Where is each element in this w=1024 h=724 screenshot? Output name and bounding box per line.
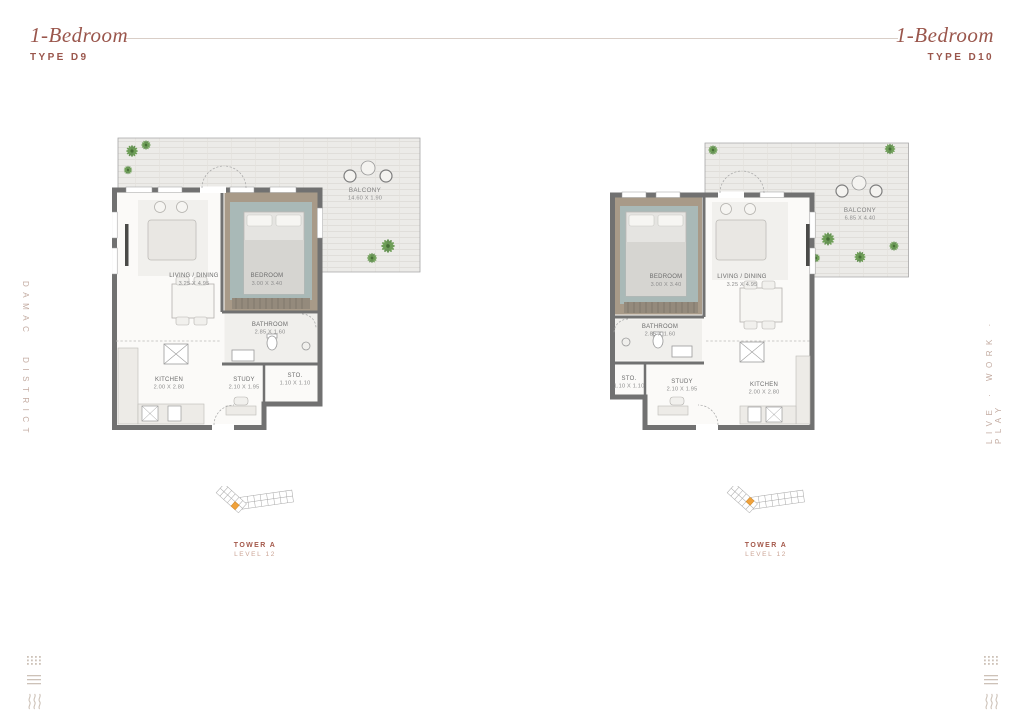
living-label: LIVING / DINING: [169, 273, 219, 279]
floor-plan-d10: BALCONY 6.85 X 4.40 BEDROOM 3.00 X 3.40 …: [600, 136, 915, 442]
floor-plan-d10-drawing: BALCONY 6.85 X 4.40 BEDROOM 3.00 X 3.40 …: [600, 136, 915, 442]
bathroom-label: BATHROOM: [642, 324, 678, 330]
storage-label: STO.: [622, 376, 637, 382]
tower-name-d10: TOWER A: [716, 542, 816, 549]
tv-icon-d9: [125, 224, 129, 266]
bedroom-label: BEDROOM: [251, 273, 284, 279]
study-label: STUDY: [233, 377, 255, 383]
tower-locator-diagram-d9: [213, 486, 297, 532]
tower-locator-d9: TOWER A LEVEL 12: [205, 486, 305, 558]
tower-name-d9: TOWER A: [205, 542, 305, 549]
living-dims: 3.25 X 4.95: [727, 282, 758, 288]
floor-plan-d9-drawing: BALCONY 14.60 X 1.90 LIVING / DINING 3.2…: [112, 136, 422, 442]
tower-locator-d10: TOWER A LEVEL 12: [716, 486, 816, 558]
storage-label: STO.: [288, 373, 303, 379]
study-label: STUDY: [671, 379, 693, 385]
balcony-dims: 6.85 X 4.40: [845, 216, 876, 222]
ornament-motif-icon: [984, 656, 1000, 714]
ornament-motif-icon: [27, 656, 43, 714]
tower-level-d10: LEVEL 12: [716, 551, 816, 558]
study-dims: 2.10 X 1.95: [229, 385, 260, 391]
page-subtitle-d9: TYPE D9: [30, 52, 128, 63]
balcony-label: BALCONY: [844, 207, 876, 214]
living-label: LIVING / DINING: [717, 274, 767, 280]
study-dims: 2.10 X 1.95: [667, 387, 698, 393]
storage-dims: 1.10 X 1.10: [614, 384, 645, 390]
corner-ornament-right: [984, 656, 1000, 712]
corner-ornament-left: [27, 656, 43, 712]
kitchen-dims: 2.00 X 2.80: [749, 390, 780, 396]
balcony-label: BALCONY: [349, 187, 381, 194]
bathroom-label: BATHROOM: [252, 322, 288, 328]
side-text-damac-district: DAMAC DISTRICT: [21, 281, 30, 441]
tower-level-d9: LEVEL 12: [205, 551, 305, 558]
header-left: 1-Bedroom TYPE D9: [30, 24, 128, 63]
bathroom-dims: 2.85 X 1.60: [645, 332, 676, 338]
bathroom-dims: 2.85 X 1.60: [255, 330, 286, 336]
bedroom-dims: 3.00 X 3.40: [252, 281, 283, 287]
header-right: 1-Bedroom TYPE D10: [896, 24, 994, 63]
apartment-area-d9: [112, 166, 323, 431]
kitchen-label: KITCHEN: [155, 377, 183, 383]
storage-dims: 1.10 X 1.10: [280, 381, 311, 387]
living-dims: 3.25 X 4.95: [179, 281, 210, 287]
side-text-live-work-play: LIVE · WORK · PLAY: [985, 272, 1003, 444]
bedroom-dims: 3.00 X 3.40: [651, 282, 682, 288]
page-subtitle-d10: TYPE D10: [896, 52, 994, 63]
apartment-area-d10: [613, 171, 816, 431]
bedroom-label: BEDROOM: [650, 274, 683, 280]
page-title-d10: 1-Bedroom: [896, 24, 994, 47]
wardrobe-icon-d9: [232, 298, 310, 309]
kitchen-dims: 2.00 X 2.80: [154, 385, 185, 391]
page-title-d9: 1-Bedroom: [30, 24, 128, 47]
tv-icon-d10: [806, 224, 810, 266]
floor-plan-d9: BALCONY 14.60 X 1.90 LIVING / DINING 3.2…: [112, 136, 422, 442]
brochure-page: { "header": { "left": { "title": "1-Bedr…: [0, 0, 1024, 724]
header-divider-line: [126, 38, 898, 39]
balcony-dims: 14.60 X 1.90: [348, 196, 382, 202]
tower-locator-diagram-d10: [724, 486, 808, 532]
kitchen-label: KITCHEN: [750, 382, 778, 388]
wardrobe-icon-d10: [624, 302, 698, 313]
